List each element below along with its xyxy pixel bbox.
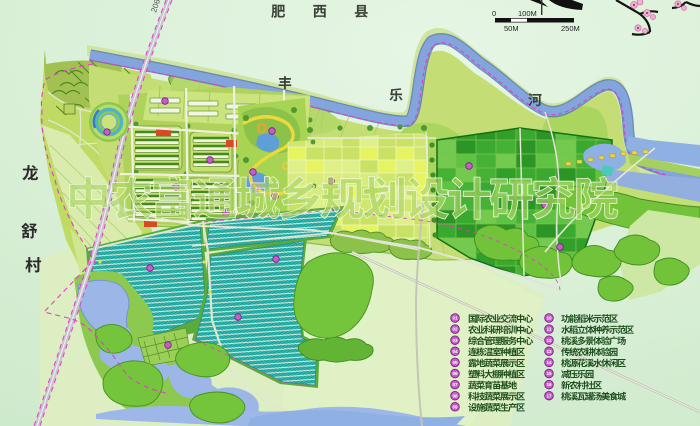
svg-text:50M: 50M <box>504 24 519 33</box>
svg-text:17: 17 <box>546 393 552 398</box>
svg-text:12: 12 <box>546 338 552 343</box>
svg-text:04: 04 <box>452 349 458 354</box>
svg-text:11: 11 <box>547 327 552 332</box>
svg-text:03: 03 <box>452 338 458 343</box>
svg-text:06: 06 <box>452 371 458 376</box>
svg-text:09: 09 <box>452 404 458 409</box>
svg-text:13: 13 <box>546 349 552 354</box>
svg-text:01: 01 <box>452 316 458 321</box>
svg-text:07: 07 <box>452 382 458 387</box>
svg-text:100M: 100M <box>518 9 537 18</box>
svg-text:02: 02 <box>452 327 458 332</box>
svg-text:15: 15 <box>546 371 552 376</box>
svg-text:08: 08 <box>452 393 458 398</box>
svg-text:16: 16 <box>546 382 552 387</box>
svg-text:14: 14 <box>546 360 552 365</box>
svg-text:0: 0 <box>492 9 496 18</box>
svg-text:250M: 250M <box>561 24 580 33</box>
svg-text:05: 05 <box>452 360 458 365</box>
svg-text:10: 10 <box>546 316 552 321</box>
